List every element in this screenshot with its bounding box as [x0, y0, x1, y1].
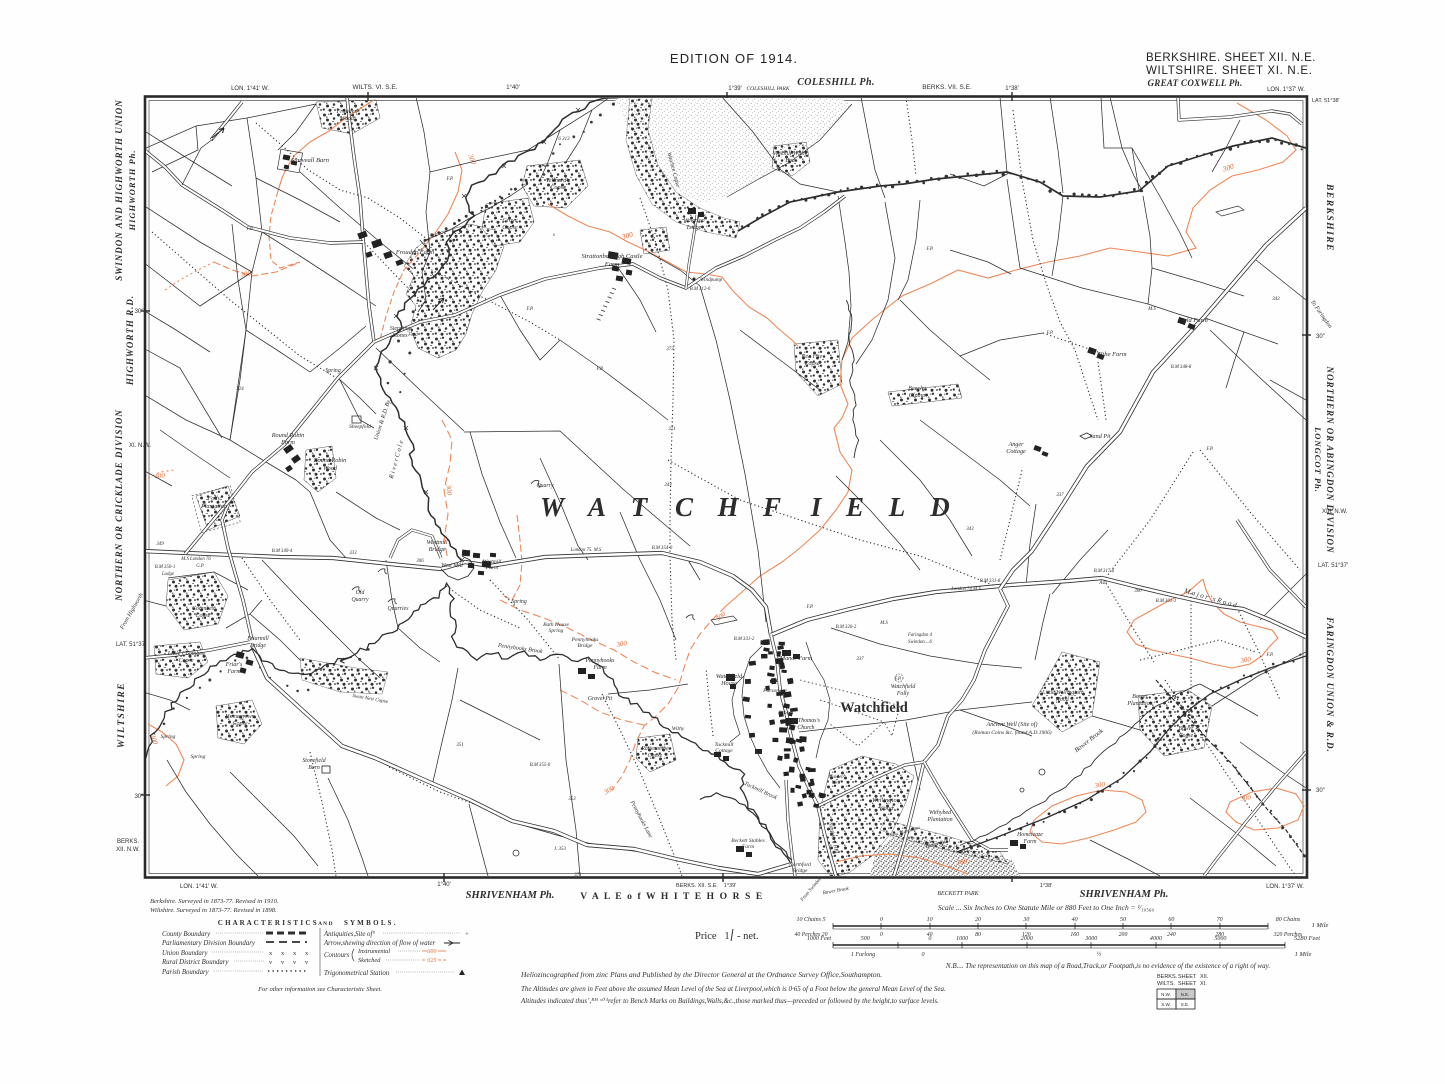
- svg-text:Clump: Clump: [909, 392, 926, 399]
- svg-text:WILTS.: WILTS.: [1157, 981, 1175, 987]
- svg-text:Tellhard's: Tellhard's: [546, 177, 571, 184]
- svg-text:Bed: Bed: [785, 157, 796, 164]
- svg-text:L: L: [888, 492, 906, 522]
- svg-text:The Altitudes are given in Fee: The Altitudes are given in Feet above th…: [521, 985, 946, 993]
- svg-text:5000: 5000: [1214, 936, 1226, 942]
- svg-text:LONGCOT Ph.: LONGCOT Ph.: [1313, 426, 1323, 493]
- svg-text:F: F: [762, 492, 781, 522]
- svg-text:Spring: Spring: [325, 368, 341, 374]
- svg-text:C: C: [675, 492, 694, 522]
- svg-text:Quarry: Quarry: [351, 597, 368, 603]
- svg-text:E: E: [845, 492, 864, 522]
- svg-text:WILTS. VI. S.E.: WILTS. VI. S.E.: [352, 84, 397, 91]
- svg-text:N.E.: N.E.: [1181, 992, 1190, 997]
- svg-text:Wood: Wood: [323, 465, 338, 472]
- svg-text:1 Mile: 1 Mile: [1312, 922, 1329, 929]
- svg-text:Parish Boundary: Parish Boundary: [161, 969, 210, 976]
- svg-text:London 75. M.S: London 75. M.S: [570, 548, 602, 553]
- svg-text:Folly: Folly: [896, 691, 910, 697]
- svg-text:Bridge: Bridge: [793, 868, 809, 874]
- svg-text:1 Furlong: 1 Furlong: [851, 952, 875, 958]
- svg-text:Rattecombe: Rattecombe: [640, 746, 669, 752]
- svg-text:Parsonage: Parsonage: [762, 688, 787, 694]
- svg-text:BERKS.: BERKS.: [117, 839, 139, 845]
- svg-text:F.P.: F.P.: [893, 677, 901, 682]
- svg-text:300: 300: [955, 857, 968, 867]
- svg-text:Plantation: Plantation: [926, 817, 952, 823]
- svg-text:Homegrown: Homegrown: [224, 714, 254, 720]
- svg-text:325: 325: [427, 958, 437, 964]
- svg-text:Farm: Farm: [741, 844, 754, 850]
- svg-text:324: 324: [236, 387, 244, 392]
- svg-text:London 74 M.S: London 74 M.S: [950, 587, 981, 592]
- svg-text:LON. 1°37′ W.: LON. 1°37′ W.: [1267, 87, 1305, 93]
- svg-text:30″: 30″: [135, 309, 145, 315]
- svg-text:Strattonborough Castle: Strattonborough Castle: [582, 253, 643, 260]
- svg-text:M.S: M.S: [1147, 307, 1156, 312]
- svg-text:Copse: Copse: [550, 184, 566, 191]
- svg-text:Withy: Withy: [672, 726, 685, 732]
- svg-text:1°40′: 1°40′: [506, 85, 520, 91]
- svg-text:Quarry: Quarry: [536, 483, 553, 489]
- svg-text:Plantation: Plantation: [200, 503, 227, 510]
- svg-text:Bower: Bower: [1132, 694, 1148, 700]
- svg-text:LAT. 51°37′: LAT. 51°37′: [116, 642, 147, 648]
- svg-text:Tithe Farm: Tithe Farm: [1097, 351, 1126, 358]
- svg-text:337: 337: [1056, 493, 1064, 498]
- svg-text:School: School: [779, 710, 794, 716]
- svg-text:SHEET: SHEET: [1178, 981, 1197, 987]
- svg-text:Watchfield: Watchfield: [716, 673, 743, 680]
- svg-text:Wiltshire. Surveyed in 1873-: Wiltshire. Surveyed in 1873-77. Revised …: [150, 907, 277, 914]
- svg-text:Manor Farm: Manor Farm: [779, 655, 813, 662]
- svg-text:FARINGDON UNION & R.D.: FARINGDON UNION & R.D.: [1325, 616, 1335, 752]
- svg-text:Faringdon 4: Faringdon 4: [907, 633, 933, 638]
- svg-text:Arrow,shewing direction of flo: Arrow,shewing direction of flow of water: [323, 940, 435, 947]
- svg-text:Bridge: Bridge: [429, 546, 446, 553]
- svg-text:Starveall Barn: Starveall Barn: [291, 157, 329, 164]
- svg-text:Farm: Farm: [604, 261, 620, 268]
- svg-text:H: H: [716, 492, 739, 522]
- svg-text:10: 10: [927, 917, 933, 923]
- svg-text:SHRIVENHAM Ph.: SHRIVENHAM Ph.: [1080, 889, 1169, 900]
- svg-text:W: W: [540, 492, 566, 522]
- svg-text:+: +: [465, 931, 469, 938]
- svg-text:Northford: Northford: [788, 861, 811, 868]
- svg-text:B.M 355-0: B.M 355-0: [530, 763, 551, 768]
- svg-text:343: 343: [664, 483, 672, 488]
- svg-text:SHRIVENHAM Ph.: SHRIVENHAM Ph.: [466, 890, 555, 901]
- svg-text:N.B.... The representation on: N.B.... The representation on this map o…: [945, 962, 1270, 970]
- svg-text:A: A: [586, 492, 606, 522]
- svg-text:Wood: Wood: [1055, 697, 1069, 703]
- svg-text:337: 337: [856, 657, 864, 662]
- svg-text:30″: 30″: [1316, 334, 1326, 340]
- svg-text:Friarmill: Friarmill: [246, 636, 269, 642]
- svg-text:T: T: [631, 492, 649, 522]
- svg-text:Scale ... Six Inches to One St: Scale ... Six Inches to One Statute Mile…: [938, 903, 1155, 912]
- svg-text:1: 1: [724, 931, 729, 942]
- svg-text:BERKS.: BERKS.: [1157, 974, 1178, 980]
- svg-text:GREAT COXWELL Ph.: GREAT COXWELL Ph.: [1147, 78, 1242, 88]
- svg-text:B.M 331-2: B.M 331-2: [734, 637, 755, 642]
- svg-text:Berkshire. Surveyed in 1873-: Berkshire. Surveyed in 1873-77. Revised …: [150, 898, 279, 905]
- svg-text:10 Chains 5: 10 Chains 5: [796, 917, 825, 923]
- svg-text:HIGHWORTH R.D.: HIGHWORTH R.D.: [125, 295, 135, 386]
- svg-text:343: 343: [1272, 297, 1280, 302]
- svg-text:1000 Feet: 1000 Feet: [807, 936, 831, 942]
- svg-text:Instrumental: Instrumental: [357, 948, 390, 955]
- svg-text:BECKETT PARK: BECKETT PARK: [937, 891, 979, 897]
- svg-text:Copse: Copse: [196, 613, 211, 619]
- svg-text:F.P.: F.P.: [445, 177, 453, 182]
- svg-text:F.P.: F.P.: [805, 605, 813, 610]
- svg-text:LON. 1°41′ W.: LON. 1°41′ W.: [180, 884, 218, 890]
- svg-text:Wood: Wood: [340, 115, 355, 122]
- svg-text:Bridge: Bridge: [578, 643, 594, 649]
- svg-text:Spring: Spring: [161, 734, 176, 740]
- svg-text:F.P.: F.P.: [925, 247, 933, 252]
- svg-text:Withybed: Withybed: [929, 810, 952, 816]
- svg-text:Copse: Copse: [1179, 733, 1194, 739]
- svg-text:Trigonometrical Station: Trigonometrical Station: [324, 970, 390, 977]
- svg-text:Lodge: Lodge: [161, 572, 175, 577]
- svg-text:B.M 350-1: B.M 350-1: [155, 565, 176, 570]
- svg-text:M.S: M.S: [879, 621, 888, 626]
- svg-text:Lodge: Lodge: [686, 225, 702, 231]
- svg-text:Swindon....6: Swindon....6: [908, 640, 932, 645]
- svg-text:Beechy: Beechy: [908, 385, 926, 392]
- svg-text:40: 40: [1072, 916, 1078, 923]
- svg-text:Ash: Ash: [1098, 581, 1107, 586]
- svg-text:BERKS. VII. S.E.: BERKS. VII. S.E.: [922, 84, 972, 91]
- svg-text:N.W.: N.W.: [1161, 992, 1171, 997]
- svg-text:LAT. 51°38′: LAT. 51°38′: [1312, 98, 1340, 104]
- svg-text:Barn: Barn: [308, 765, 320, 771]
- svg-text:Pea Fite: Pea Fite: [801, 354, 823, 360]
- svg-text:Copse: Copse: [233, 721, 248, 727]
- svg-text:J. 353: J. 353: [554, 847, 566, 852]
- svg-text:Plantation: Plantation: [1126, 701, 1152, 707]
- svg-text:300: 300: [444, 483, 453, 496]
- svg-text:Old: Old: [356, 590, 365, 596]
- svg-text:LAT. 51°37′: LAT. 51°37′: [1318, 563, 1349, 569]
- svg-text:2000: 2000: [1021, 936, 1033, 942]
- svg-text:BERKSHIRE: BERKSHIRE: [1324, 183, 1334, 252]
- svg-text:300: 300: [1134, 589, 1142, 594]
- svg-text:Round Robin: Round Robin: [313, 457, 346, 464]
- svg-text:306: 306: [416, 559, 424, 564]
- svg-text:St.Thomas's: St.Thomas's: [792, 718, 821, 724]
- svg-text:HIGHWORTH Ph.: HIGHWORTH Ph.: [127, 149, 137, 231]
- svg-text:Heliozincographed from zinc: Heliozincographed from zinc Plans and Pu…: [520, 970, 882, 979]
- svg-text:½: ½: [1097, 951, 1102, 958]
- svg-text:B.M 331-8: B.M 331-8: [980, 579, 1001, 584]
- svg-text:F.P.: F.P.: [525, 307, 533, 312]
- svg-text:Spring: Spring: [549, 628, 564, 634]
- svg-text:XIII. N.W.: XIII. N.W.: [1322, 509, 1348, 515]
- svg-text:3000: 3000: [1084, 936, 1097, 942]
- svg-text:Little Coombes: Little Coombes: [167, 651, 205, 657]
- svg-text:B.M 317-6: B.M 317-6: [1094, 569, 1115, 574]
- svg-text:0: 0: [880, 917, 883, 923]
- svg-text:Price: Price: [695, 931, 717, 942]
- svg-text:500: 500: [861, 936, 870, 942]
- svg-text:Anger: Anger: [1007, 441, 1024, 448]
- svg-text:Watchfield: Watchfield: [891, 683, 916, 690]
- svg-text:Union Boundary: Union Boundary: [162, 950, 208, 957]
- svg-text:Farm: Farm: [485, 565, 498, 571]
- svg-text:G.P: G.P: [196, 564, 204, 569]
- svg-text:Rural District Boundary: Rural District Boundary: [161, 959, 229, 966]
- svg-text:Ford: Ford: [407, 333, 418, 338]
- svg-text:351: 351: [456, 743, 463, 748]
- svg-text:NORTHERN OR CRICKLADE DIVIS: NORTHERN OR CRICKLADE DIVISION: [114, 409, 124, 602]
- svg-text:BERKS. XII. S.E.: BERKS. XII. S.E.: [676, 883, 718, 889]
- svg-text:S.W.: S.W.: [1161, 1002, 1171, 1007]
- svg-text:Farm: Farm: [280, 439, 295, 446]
- svg-text:West Mill: West Mill: [441, 563, 463, 569]
- svg-text:60: 60: [1168, 917, 1174, 923]
- svg-text:70: 70: [1217, 917, 1223, 923]
- svg-text:Altitudes indicated thus’,ᴮᴹ ˢ: Altitudes indicated thus’,ᴮᴹ ˢ⁰ ¹refer t…: [520, 997, 939, 1005]
- svg-text:Westmill: Westmill: [426, 539, 447, 546]
- svg-text:XII. N.W.: XII. N.W.: [116, 847, 140, 853]
- svg-text:373: 373: [666, 347, 674, 352]
- svg-text:LON. 1°37′ W.: LON. 1°37′ W.: [1266, 884, 1304, 890]
- svg-text:Stonefield: Stonefield: [302, 757, 325, 764]
- svg-text:Cottage: Cottage: [1006, 448, 1026, 455]
- svg-text:Bower: Bower: [1178, 726, 1194, 732]
- svg-text:Spring: Spring: [511, 599, 527, 605]
- svg-text:A N D: A N D: [317, 921, 332, 927]
- svg-text:1°39′: 1°39′: [728, 86, 742, 92]
- svg-text:1°38′: 1°38′: [1040, 883, 1052, 889]
- svg-text:V A L E o f W H I T E H: V A L E o f W H I T E H O R S E: [580, 892, 764, 902]
- svg-text:XI.: XI.: [1200, 981, 1207, 987]
- svg-text:Antiquities,Site of°: Antiquities,Site of°: [323, 931, 375, 938]
- svg-text:Copse: Copse: [805, 361, 820, 367]
- svg-text:Quarries: Quarries: [388, 606, 410, 612]
- svg-text:Church: Church: [797, 725, 814, 731]
- svg-text:Gravel Pit: Gravel Pit: [588, 696, 613, 702]
- svg-text:XI. N.W.: XI. N.W.: [129, 443, 151, 449]
- svg-text:B.M 348-8: B.M 348-8: [1171, 365, 1192, 370]
- svg-text:Homeleaze: Homeleaze: [1016, 832, 1043, 838]
- svg-text:1°40′: 1°40′: [437, 882, 451, 888]
- svg-text:Farm: Farm: [592, 665, 607, 671]
- svg-text:353: 353: [568, 797, 576, 802]
- svg-text:30″: 30″: [1316, 788, 1326, 794]
- svg-text:Stones: Stones: [392, 333, 408, 339]
- svg-text:371: 371: [668, 427, 675, 432]
- svg-text:COLESHILL Ph.: COLESHILL Ph.: [797, 77, 875, 88]
- svg-text:Bridge: Bridge: [250, 643, 266, 649]
- svg-text:Windpump: Windpump: [700, 277, 723, 283]
- svg-text:Pennyhooks: Pennyhooks: [585, 658, 616, 664]
- svg-text:Frouden: Frouden: [335, 108, 357, 115]
- svg-text:EDITION OF 1914.: EDITION OF 1914.: [670, 51, 798, 66]
- svg-text:NORTHERN OR ABINGDON DIVISI: NORTHERN OR ABINGDON DIVISION: [1325, 366, 1335, 554]
- svg-text:1000: 1000: [956, 936, 968, 942]
- svg-text:SWINDON AND HIGHWORTH UNION: SWINDON AND HIGHWORTH UNION: [114, 99, 124, 280]
- svg-text:S Y M B O L S .: S Y M B O L S .: [344, 919, 396, 927]
- svg-text:6 313: 6 313: [558, 137, 570, 142]
- svg-text:(Roman Coins &c. found A.D.190: (Roman Coins &c. found A.D.1906): [972, 729, 1051, 736]
- svg-text:Little Wellington: Little Wellington: [1041, 690, 1082, 696]
- svg-text:240: 240: [1167, 931, 1176, 938]
- svg-text:County Boundary: County Boundary: [162, 931, 211, 938]
- svg-text:C H A R A C T E R I S T I C S: C H A R A C T E R I S T I C S: [218, 919, 317, 927]
- svg-text:Watchfield: Watchfield: [840, 700, 908, 716]
- svg-text:Parliamentary Division Boundar: Parliamentary Division Boundary: [161, 940, 256, 947]
- svg-text:Stepping: Stepping: [390, 326, 410, 332]
- svg-text:M.S London 76: M.S London 76: [180, 557, 211, 562]
- svg-text:B.M 312-0: B.M 312-0: [690, 287, 711, 292]
- svg-text:349: 349: [156, 542, 164, 547]
- svg-text:B.M 354-0: B.M 354-0: [652, 546, 673, 551]
- svg-text:Grove: Grove: [502, 217, 517, 224]
- svg-text:Waterloo: Waterloo: [683, 218, 704, 224]
- svg-text:200: 200: [1119, 932, 1128, 938]
- svg-text:80: 80: [975, 932, 981, 938]
- svg-text:Coombes: Coombes: [192, 606, 215, 612]
- svg-text:S.E.: S.E.: [1181, 1002, 1190, 1007]
- svg-text:SHEET: SHEET: [1178, 974, 1197, 980]
- svg-text:Wellington: Wellington: [872, 797, 900, 804]
- svg-text:Copse: Copse: [502, 224, 518, 231]
- svg-text:4000: 4000: [1150, 935, 1162, 942]
- svg-text:Farm: Farm: [1023, 839, 1037, 845]
- svg-text:For other information see Char: For other information see Characteristic…: [257, 986, 382, 993]
- svg-text:343: 343: [966, 527, 974, 532]
- svg-text:160: 160: [1070, 932, 1079, 938]
- svg-text:Maiden: Maiden: [827, 775, 844, 780]
- svg-text:WILTSHIRE: WILTSHIRE: [117, 682, 127, 748]
- svg-text:- net.: - net.: [737, 931, 759, 942]
- svg-text:Friar's: Friar's: [225, 662, 243, 668]
- svg-text:Copse: Copse: [648, 753, 663, 759]
- svg-text:B.M 326-2: B.M 326-2: [836, 625, 857, 630]
- svg-text:B.M 340-4: B.M 340-4: [272, 549, 293, 554]
- svg-text:Cottage: Cottage: [715, 748, 733, 754]
- svg-text:Farm: Farm: [226, 669, 241, 675]
- svg-text:80 Chains: 80 Chains: [1276, 917, 1301, 923]
- svg-text:Round Robin: Round Robin: [271, 432, 304, 439]
- svg-text:Well: Well: [832, 781, 841, 786]
- svg-text:COLESHILL PARK: COLESHILL PARK: [746, 86, 789, 92]
- svg-text:Copse: Copse: [179, 658, 194, 664]
- svg-text:F.P.: F.P.: [1265, 653, 1273, 658]
- svg-text:D: D: [929, 492, 950, 522]
- svg-text:50: 50: [1120, 917, 1126, 923]
- svg-text:F.P.: F.P.: [595, 367, 603, 372]
- svg-text:B.M 301-1: B.M 301-1: [1156, 599, 1177, 604]
- svg-text:Contours: Contours: [324, 952, 350, 959]
- svg-text:F.P.: F.P.: [1045, 331, 1053, 336]
- svg-text:0: 0: [922, 952, 925, 958]
- svg-text:1°38′: 1°38′: [1005, 86, 1019, 92]
- svg-text:20: 20: [975, 917, 981, 923]
- svg-text:333: 333: [349, 551, 357, 556]
- svg-text:Sketched: Sketched: [358, 957, 381, 964]
- svg-text:Field Farm: Field Farm: [1177, 317, 1208, 324]
- svg-text:I: I: [810, 492, 823, 522]
- svg-text:1°39′: 1°39′: [724, 883, 736, 889]
- svg-text:0: 0: [880, 932, 883, 938]
- svg-text:Vinehill Withy: Vinehill Withy: [773, 150, 808, 157]
- svg-text:5280 Feet: 5280 Feet: [1294, 935, 1320, 942]
- svg-text:F.P.: F.P.: [1205, 447, 1213, 452]
- svg-text:Sheepfold: Sheepfold: [349, 423, 371, 430]
- svg-text:House: House: [720, 680, 737, 687]
- svg-text:Spring: Spring: [191, 754, 206, 760]
- svg-text:Folly: Folly: [206, 495, 220, 502]
- svg-text:0: 0: [928, 936, 931, 942]
- svg-text:WILTSHIRE. SHEET XI. N.E.: WILTSHIRE. SHEET XI. N.E.: [1146, 65, 1313, 77]
- svg-text:300: 300: [427, 949, 437, 955]
- svg-text:XII.: XII.: [1200, 974, 1209, 980]
- svg-text:BERKSHIRE. SHEET XII. N.E.: BERKSHIRE. SHEET XII. N.E.: [1146, 52, 1316, 64]
- svg-text:F.P.: F.P.: [245, 227, 253, 232]
- svg-text:1 Mile: 1 Mile: [1295, 951, 1312, 958]
- svg-text:Sand Pit: Sand Pit: [1089, 433, 1110, 440]
- svg-text:Wood: Wood: [879, 805, 894, 812]
- svg-text:Frouden Farm: Frouden Farm: [395, 249, 435, 256]
- svg-text:30: 30: [1022, 917, 1029, 923]
- svg-text:LON. 1°41′ W.: LON. 1°41′ W.: [231, 86, 269, 92]
- svg-text:Ancient Well (Site of): Ancient Well (Site of): [986, 721, 1038, 728]
